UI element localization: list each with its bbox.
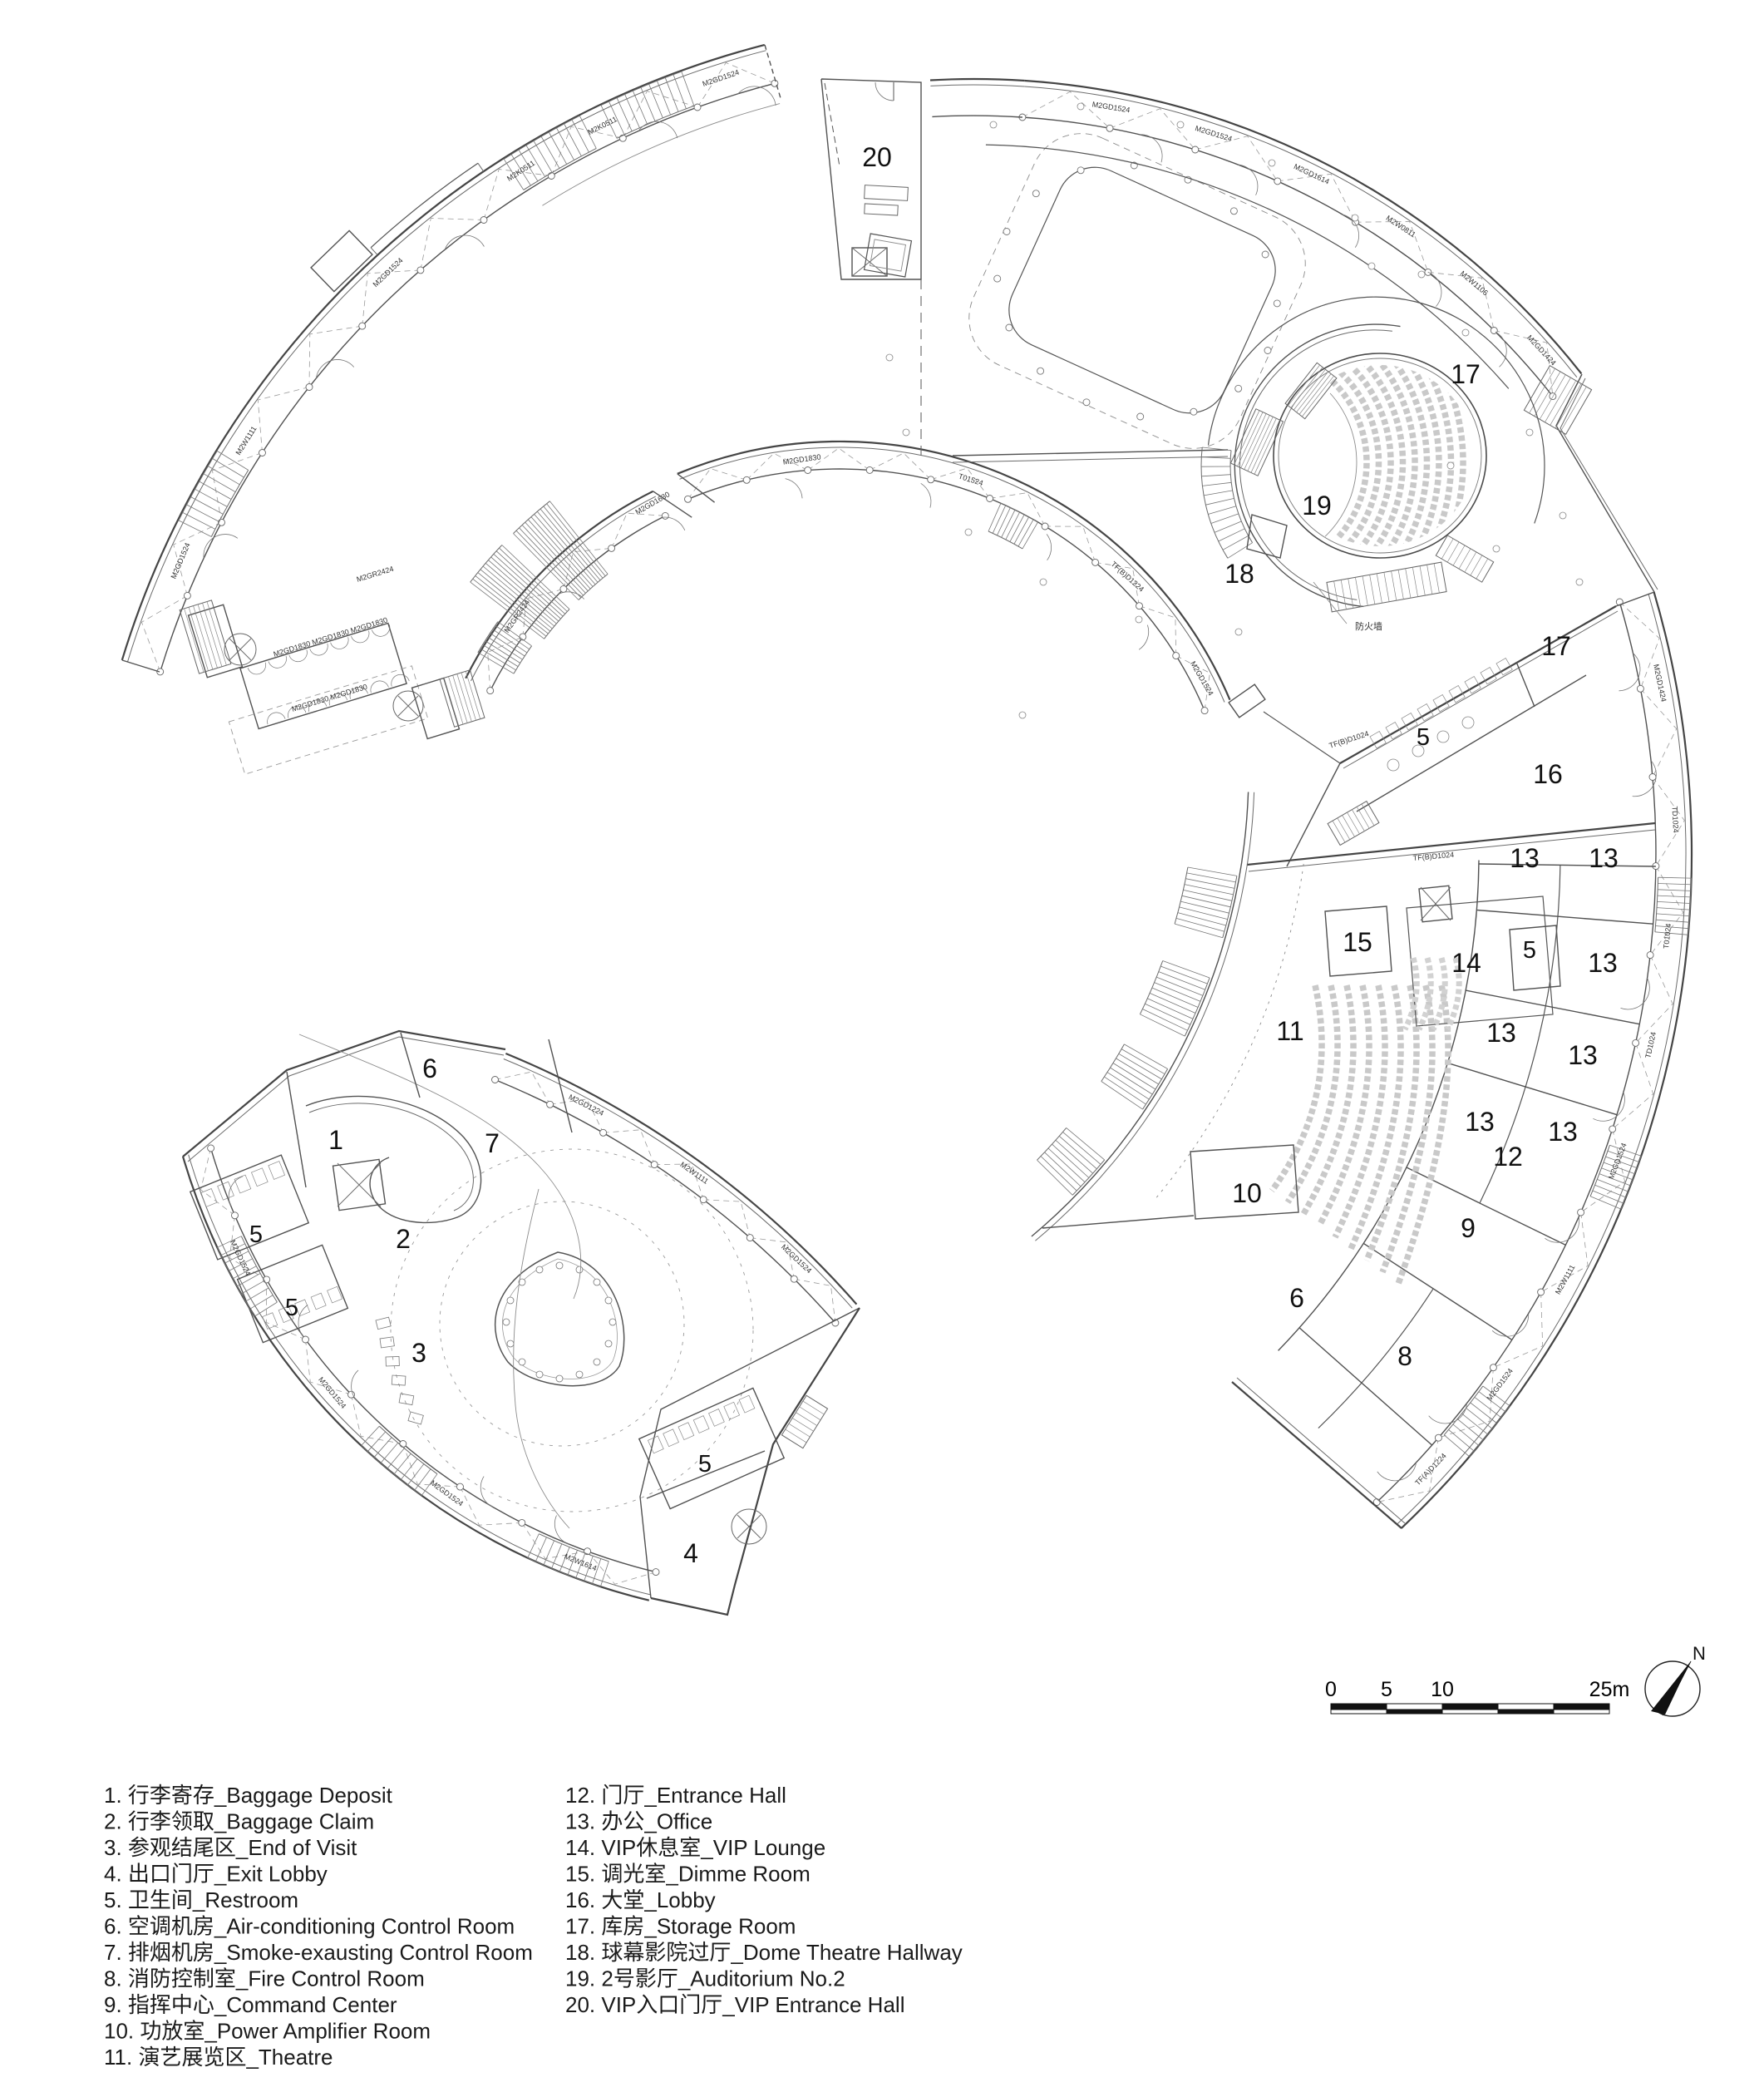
svg-text:TD1024: TD1024 xyxy=(1671,806,1681,833)
svg-text:3. 参观结尾区_End of Visit: 3. 参观结尾区_End of Visit xyxy=(104,1835,357,1860)
svg-text:1. 行李寄存_Baggage Deposit: 1. 行李寄存_Baggage Deposit xyxy=(104,1783,393,1808)
svg-text:17: 17 xyxy=(1541,631,1571,661)
svg-text:6: 6 xyxy=(422,1053,437,1083)
svg-text:19: 19 xyxy=(1302,491,1332,521)
svg-text:19. 2号影厅_Auditorium No.2: 19. 2号影厅_Auditorium No.2 xyxy=(565,1966,845,1991)
svg-text:10: 10 xyxy=(1232,1178,1262,1208)
svg-text:13: 13 xyxy=(1548,1117,1578,1147)
svg-text:13: 13 xyxy=(1486,1018,1516,1048)
svg-text:11: 11 xyxy=(1276,1016,1303,1046)
svg-text:7. 排烟机房_Smoke-exausting Contro: 7. 排烟机房_Smoke-exausting Control Room xyxy=(104,1940,533,1965)
svg-text:0: 0 xyxy=(1325,1678,1337,1701)
svg-text:20. VIP入口门厅_VIP Entrance Hall: 20. VIP入口门厅_VIP Entrance Hall xyxy=(565,1992,904,2017)
svg-text:16. 大堂_Lobby: 16. 大堂_Lobby xyxy=(565,1887,716,1912)
svg-text:18: 18 xyxy=(1224,559,1254,589)
svg-text:3: 3 xyxy=(411,1338,426,1368)
svg-text:6. 空调机房_Air-conditioning Contr: 6. 空调机房_Air-conditioning Control Room xyxy=(104,1914,515,1939)
svg-text:13: 13 xyxy=(1589,843,1619,873)
svg-text:13: 13 xyxy=(1568,1040,1598,1070)
svg-text:5: 5 xyxy=(1417,724,1430,751)
svg-text:25m: 25m xyxy=(1589,1678,1630,1701)
svg-text:11. 演艺展览区_Theatre: 11. 演艺展览区_Theatre xyxy=(104,2045,333,2070)
svg-text:15: 15 xyxy=(1343,927,1372,957)
svg-text:N: N xyxy=(1693,1643,1706,1664)
svg-text:2. 行李领取_Baggage Claim: 2. 行李领取_Baggage Claim xyxy=(104,1809,374,1834)
svg-text:10. 功放室_Power Amplifier Room: 10. 功放室_Power Amplifier Room xyxy=(104,2019,431,2044)
svg-text:12. 门厅_Entrance Hall: 12. 门厅_Entrance Hall xyxy=(565,1783,786,1808)
svg-text:14. VIP休息室_VIP Lounge: 14. VIP休息室_VIP Lounge xyxy=(565,1835,825,1860)
svg-text:20: 20 xyxy=(862,142,892,172)
svg-text:13: 13 xyxy=(1510,843,1540,873)
svg-text:5: 5 xyxy=(249,1221,263,1248)
svg-text:5: 5 xyxy=(285,1295,298,1321)
svg-text:17. 库房_Storage Room: 17. 库房_Storage Room xyxy=(565,1914,796,1939)
svg-text:防火墙: 防火墙 xyxy=(1355,620,1382,632)
svg-text:5: 5 xyxy=(1523,937,1536,964)
svg-text:4. 出口门厅_Exit Lobby: 4. 出口门厅_Exit Lobby xyxy=(104,1862,328,1887)
svg-text:5: 5 xyxy=(1381,1678,1392,1701)
svg-text:6: 6 xyxy=(1289,1283,1304,1313)
svg-text:13: 13 xyxy=(1465,1107,1495,1137)
svg-text:9: 9 xyxy=(1461,1213,1476,1243)
svg-text:12: 12 xyxy=(1493,1142,1523,1172)
svg-text:13: 13 xyxy=(1588,948,1618,978)
svg-text:15. 调光室_Dimme Room: 15. 调光室_Dimme Room xyxy=(565,1862,811,1887)
svg-text:9. 指挥中心_Command Center: 9. 指挥中心_Command Center xyxy=(104,1992,397,2017)
svg-text:4: 4 xyxy=(683,1538,698,1568)
svg-text:5: 5 xyxy=(698,1451,712,1478)
svg-text:2: 2 xyxy=(396,1224,411,1254)
svg-text:8. 消防控制室_Fire Control Room: 8. 消防控制室_Fire Control Room xyxy=(104,1966,425,1991)
svg-text:16: 16 xyxy=(1533,759,1563,789)
svg-text:13. 办公_Office: 13. 办公_Office xyxy=(565,1809,712,1834)
svg-text:18. 球幕影院过厅_Dome Theatre Hallwa: 18. 球幕影院过厅_Dome Theatre Hallway xyxy=(565,1940,963,1965)
svg-text:1: 1 xyxy=(328,1125,343,1155)
svg-text:17: 17 xyxy=(1451,359,1481,389)
svg-text:14: 14 xyxy=(1451,948,1481,978)
svg-text:5. 卫生间_Restroom: 5. 卫生间_Restroom xyxy=(104,1887,298,1912)
svg-text:10: 10 xyxy=(1431,1678,1454,1701)
svg-text:8: 8 xyxy=(1397,1341,1412,1371)
svg-text:7: 7 xyxy=(485,1128,500,1158)
